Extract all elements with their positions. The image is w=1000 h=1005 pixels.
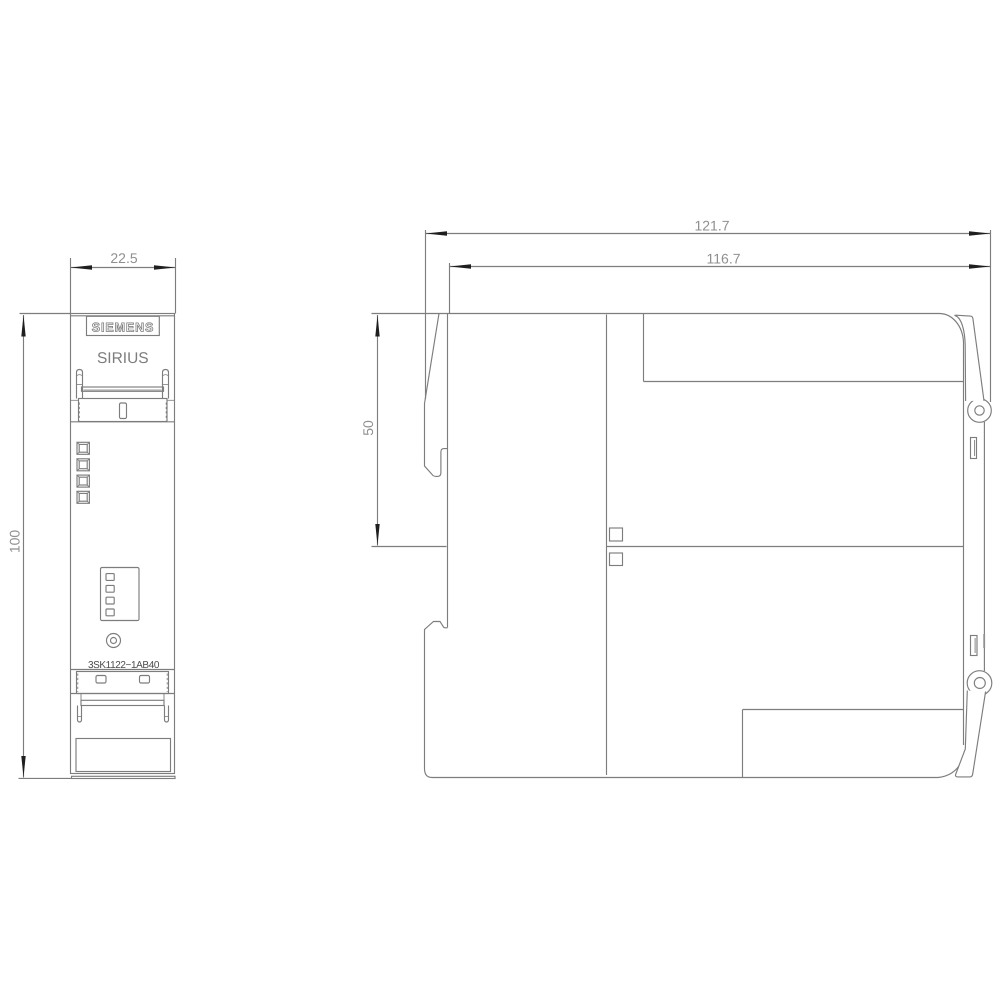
- svg-text:SIEMENS: SIEMENS: [92, 321, 155, 335]
- svg-text:22.5: 22.5: [110, 250, 137, 266]
- svg-text:SIRIUS: SIRIUS: [97, 350, 149, 367]
- svg-text:121.7: 121.7: [694, 218, 729, 234]
- svg-text:116.7: 116.7: [707, 251, 741, 267]
- svg-text:3SK1122−1AB40: 3SK1122−1AB40: [88, 660, 160, 671]
- svg-text:100: 100: [7, 530, 23, 554]
- svg-text:50: 50: [360, 420, 376, 436]
